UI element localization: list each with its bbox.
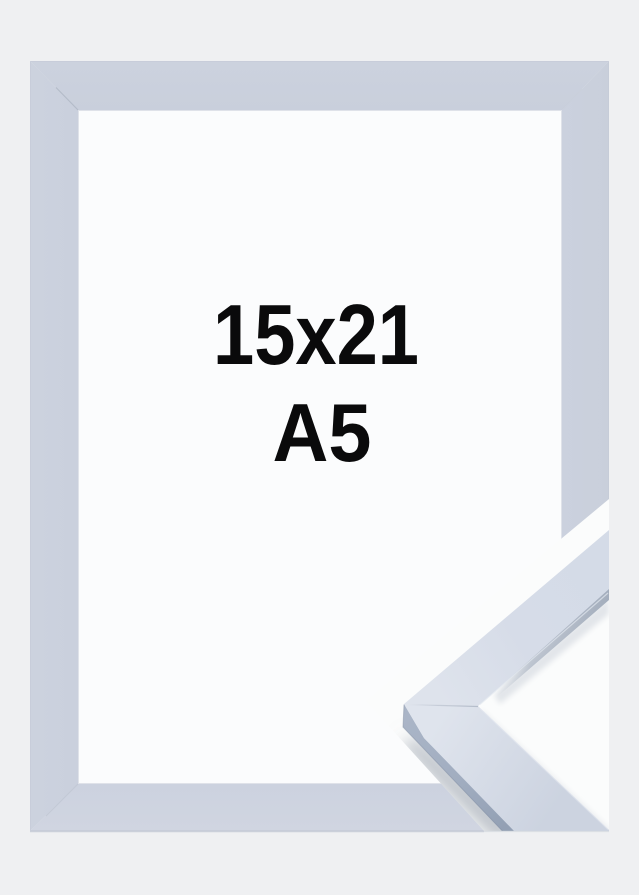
svg-text:A5: A5 [273,386,372,479]
svg-text:15x21: 15x21 [213,288,419,383]
